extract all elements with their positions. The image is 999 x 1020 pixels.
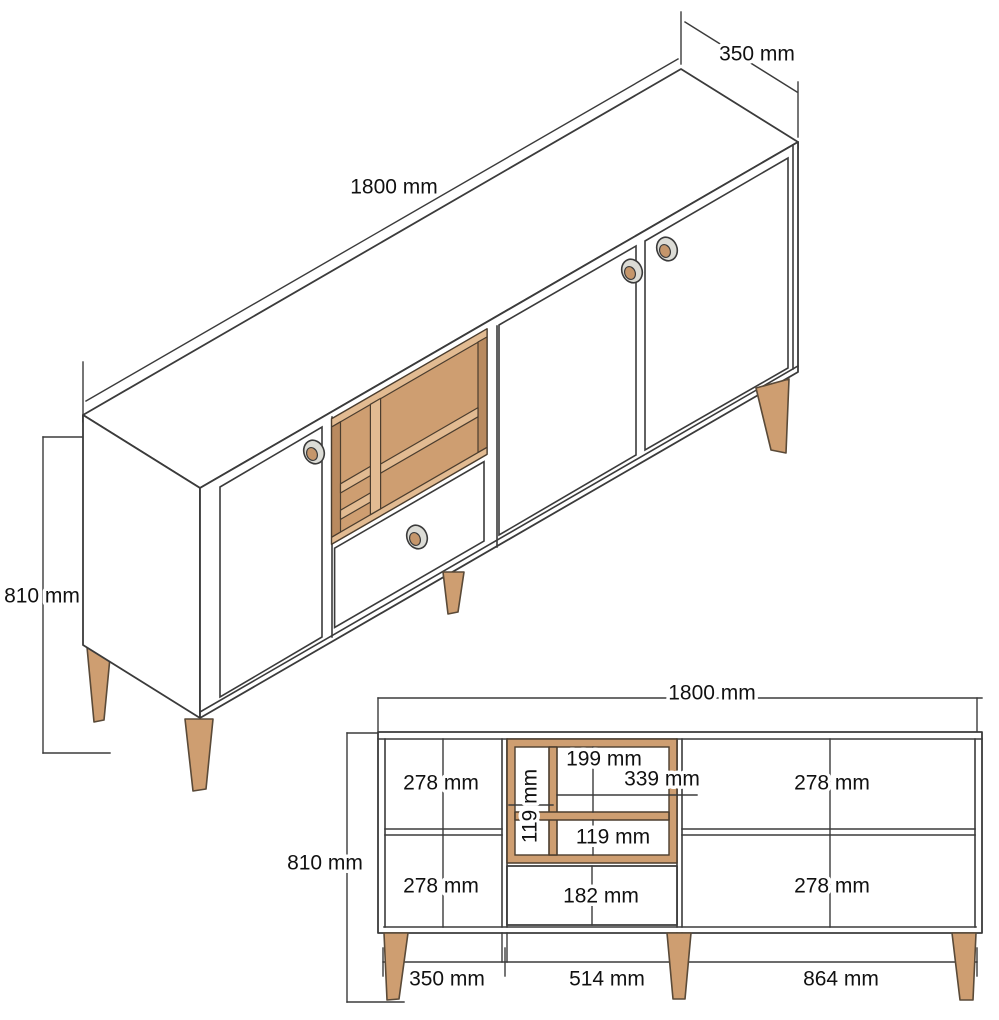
front-left-leg [384,933,408,1000]
section-left-label: 350 mm [409,968,485,991]
front-height-label: 810 mm [287,852,363,875]
technical-drawing-page: 1800 mm 350 mm 810 mm [0,0,999,1020]
front-view: 1800 mm 810 mm 278 mm 278 mm 278 mm 278 … [287,682,982,1002]
iso-height-label: 810 mm [4,585,80,608]
iso-front-middle-leg [443,572,464,614]
left-bottom-compartment-label: 278 mm [403,875,479,898]
section-middle-label: 514 mm [569,968,645,991]
shelf-right-wall [478,337,487,452]
iso-depth-label: 350 mm [719,43,795,66]
front-right-leg [952,933,976,1000]
section-right-label: 864 mm [803,968,879,991]
drawer-label: 182 mm [563,885,639,908]
iso-front-right-leg [756,379,789,453]
right-bottom-compartment-label: 278 mm [794,875,870,898]
front-shelf-vertical-divider [549,747,557,855]
shelf-left-wall [332,422,341,537]
iso-view: 1800 mm 350 mm 810 mm [4,12,798,791]
drawing-canvas: 1800 mm 350 mm 810 mm [0,0,999,1020]
shelf-vertical-divider [370,398,380,514]
shelf-bottom-cell-label: 119 mm [576,826,650,849]
left-top-compartment-label: 278 mm [403,772,479,795]
shelf-width-label: 339 mm [624,768,700,791]
front-cabinet-outline [378,732,982,933]
shelf-left-col-label: 119 mm [519,769,542,843]
iso-front-left-leg [185,719,213,791]
iso-width-label: 1800 mm [350,176,438,199]
right-top-compartment-label: 278 mm [794,772,870,795]
front-width-label: 1800 mm [668,682,756,705]
front-middle-leg [667,933,691,999]
